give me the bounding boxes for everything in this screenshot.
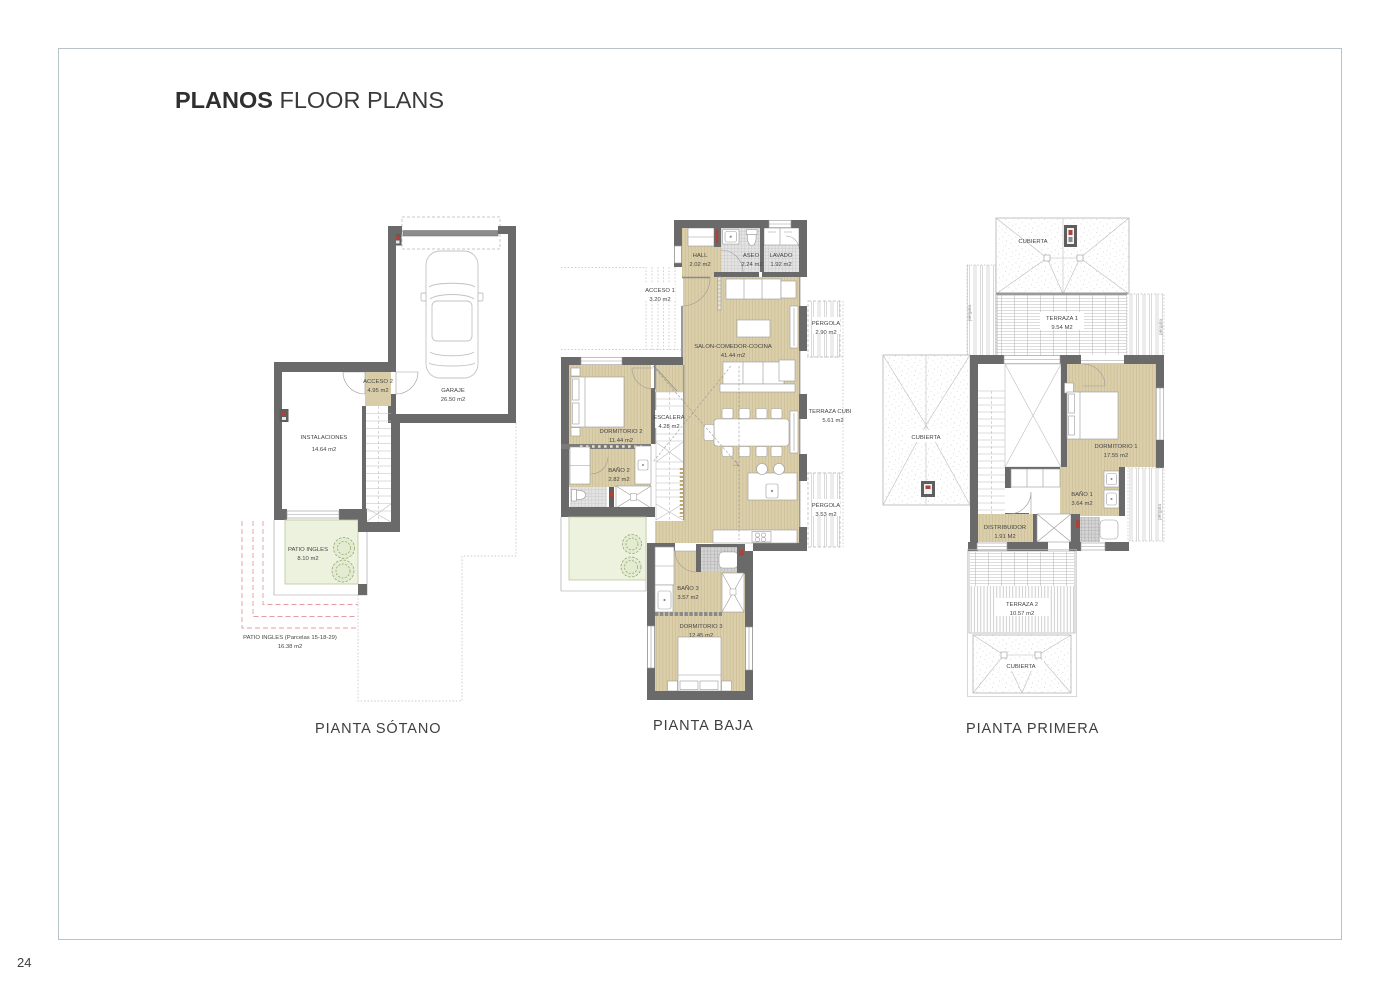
svg-text:8.10 m2: 8.10 m2 — [297, 556, 318, 562]
svg-text:SALON-COMEDOR-COCINA: SALON-COMEDOR-COCINA — [694, 344, 772, 350]
svg-text:DORMITORIO 3: DORMITORIO 3 — [679, 624, 723, 630]
svg-text:2.02 m2: 2.02 m2 — [689, 262, 710, 268]
svg-text:TERRAZA 2: TERRAZA 2 — [1006, 602, 1038, 608]
svg-text:DORMITORIO 2: DORMITORIO 2 — [599, 429, 642, 435]
svg-text:2.82 m2: 2.82 m2 — [608, 477, 629, 483]
svg-text:ASEO: ASEO — [743, 253, 760, 259]
svg-text:ACCESO 2: ACCESO 2 — [363, 379, 393, 385]
svg-text:ACCESO 1: ACCESO 1 — [645, 288, 675, 294]
svg-text:2.90 m2: 2.90 m2 — [815, 330, 836, 336]
svg-text:BAÑO 3: BAÑO 3 — [677, 585, 699, 592]
svg-text:TERRAZA 1: TERRAZA 1 — [1046, 316, 1078, 322]
svg-text:3.20 m2: 3.20 m2 — [649, 297, 670, 303]
svg-text:11.44 m2: 11.44 m2 — [609, 438, 633, 444]
svg-text:3.53 m2: 3.53 m2 — [815, 512, 836, 518]
svg-text:BAÑO 2: BAÑO 2 — [608, 467, 630, 474]
svg-text:10.57 m2: 10.57 m2 — [1010, 611, 1035, 617]
svg-text:2.24 m2: 2.24 m2 — [741, 262, 762, 268]
svg-text:4.28 m2: 4.28 m2 — [658, 424, 679, 430]
svg-text:PÉRGOLA: PÉRGOLA — [812, 320, 841, 327]
svg-text:DORMITORIO 1: DORMITORIO 1 — [1094, 444, 1137, 450]
svg-text:CUBIERTA: CUBIERTA — [911, 435, 940, 441]
svg-text:pérgola: pérgola — [1157, 504, 1163, 520]
svg-text:26.50 m2: 26.50 m2 — [441, 397, 466, 403]
svg-text:LAVADO: LAVADO — [769, 253, 792, 259]
svg-text:pérgola: pérgola — [967, 305, 973, 321]
svg-text:3.57 m2: 3.57 m2 — [677, 595, 698, 601]
svg-text:5.61 m2: 5.61 m2 — [822, 418, 843, 424]
svg-text:PATIO INGLES: PATIO INGLES — [288, 547, 328, 553]
svg-text:3.64 m2: 3.64 m2 — [1071, 501, 1092, 507]
svg-text:16.38 m2: 16.38 m2 — [278, 644, 303, 650]
svg-text:PATIO INGLES (Parcelas 15-18-2: PATIO INGLES (Parcelas 15-18-29) — [243, 635, 337, 641]
svg-text:HALL: HALL — [693, 253, 708, 259]
svg-text:1.92 m2: 1.92 m2 — [770, 262, 791, 268]
svg-text:ESCALERA: ESCALERA — [653, 415, 685, 421]
svg-text:14.64 m2: 14.64 m2 — [312, 447, 337, 453]
svg-text:GARAJE: GARAJE — [441, 388, 465, 394]
svg-text:9.54 M2: 9.54 M2 — [1051, 325, 1072, 331]
svg-text:1.91 M2: 1.91 M2 — [994, 534, 1015, 540]
svg-text:17.55 m2: 17.55 m2 — [1104, 453, 1129, 459]
svg-text:TERRAZA CUBI: TERRAZA CUBI — [809, 409, 852, 415]
svg-text:CUBIERTA: CUBIERTA — [1018, 239, 1047, 245]
svg-text:PÉRGOLA: PÉRGOLA — [812, 502, 841, 509]
svg-text:INSTALACIONES: INSTALACIONES — [301, 435, 348, 441]
svg-text:pérgola: pérgola — [1158, 319, 1164, 335]
svg-text:DISTRIBUIDOR: DISTRIBUIDOR — [984, 525, 1026, 531]
svg-text:BAÑO 1: BAÑO 1 — [1071, 491, 1093, 498]
svg-text:41.44 m2: 41.44 m2 — [721, 353, 746, 359]
svg-text:CUBIERTA: CUBIERTA — [1006, 664, 1035, 670]
svg-text:4.95 m2: 4.95 m2 — [367, 388, 388, 394]
